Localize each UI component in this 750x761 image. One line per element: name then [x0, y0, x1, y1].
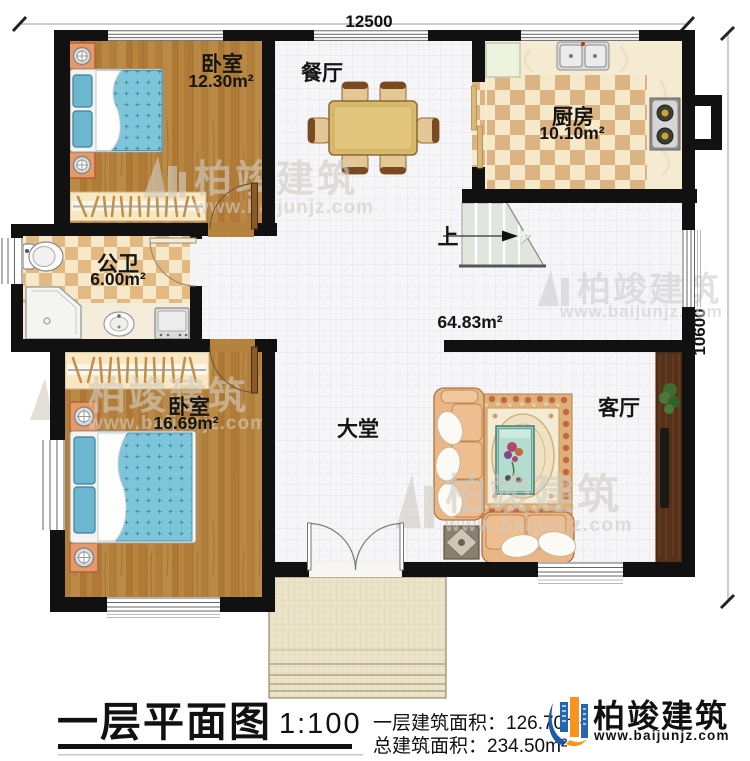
- svg-text:1:100: 1:100: [279, 708, 362, 740]
- svg-text:大堂: 大堂: [337, 417, 379, 441]
- svg-text:上: 上: [438, 226, 459, 249]
- svg-text:客厅: 客厅: [598, 396, 640, 420]
- svg-text:10.10m²: 10.10m²: [539, 123, 604, 143]
- svg-text:12500: 12500: [345, 12, 392, 31]
- svg-text:www.baijunjz.com: www.baijunjz.com: [444, 515, 633, 536]
- svg-text:www.baijunjz.com: www.baijunjz.com: [559, 302, 723, 321]
- svg-text:64.83m²: 64.83m²: [437, 312, 502, 332]
- svg-text:一层平面图: 一层平面图: [57, 699, 272, 745]
- svg-text:柏竣建筑: 柏竣建筑: [194, 159, 358, 201]
- svg-text:柏竣建筑: 柏竣建筑: [445, 471, 621, 518]
- svg-text:16.69m²: 16.69m²: [153, 413, 218, 433]
- svg-text:www.baijunjz.com: www.baijunjz.com: [593, 728, 730, 743]
- svg-text:6.00m²: 6.00m²: [90, 269, 146, 289]
- svg-text:餐厅: 餐厅: [301, 61, 343, 85]
- svg-text:12.30m²: 12.30m²: [188, 71, 253, 91]
- svg-text:总建筑面积：234.50m²: 总建筑面积：234.50m²: [373, 735, 567, 757]
